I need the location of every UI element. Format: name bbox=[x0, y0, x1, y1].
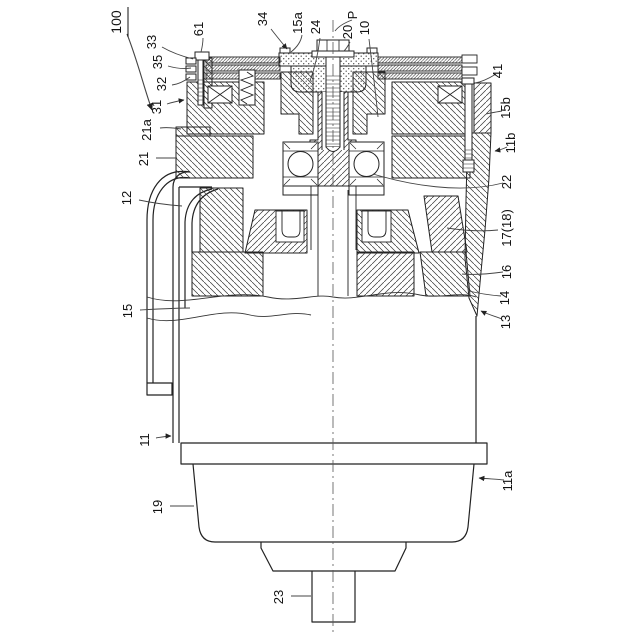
step-21a bbox=[176, 127, 210, 136]
ref-label-P: P bbox=[345, 11, 360, 20]
tier-block-left-21 bbox=[176, 136, 253, 178]
magnet-17-18 bbox=[424, 196, 467, 252]
tier-block-right bbox=[392, 136, 470, 178]
strip-endcap bbox=[462, 67, 477, 75]
lip-15a-left bbox=[280, 48, 290, 53]
bearing-left-seat bbox=[283, 186, 318, 195]
leader-15a bbox=[291, 35, 302, 52]
lamination-strip bbox=[378, 65, 462, 71]
ref-label-12: 12 bbox=[119, 191, 134, 205]
ref-label-14: 14 bbox=[497, 291, 512, 305]
ref-label-100: 100 bbox=[108, 10, 124, 34]
ref-label-15a: 15a bbox=[290, 11, 305, 33]
leader-34 bbox=[271, 29, 287, 49]
ref-label-15: 15 bbox=[120, 304, 135, 318]
leader-11 bbox=[156, 436, 171, 438]
screw-61-shank bbox=[198, 60, 203, 105]
ref-label-10: 10 bbox=[357, 21, 372, 35]
bolt-41-foot bbox=[463, 160, 474, 172]
strip-endcap bbox=[462, 55, 477, 63]
ref-label-11a: 11a bbox=[500, 470, 515, 491]
patent-motor-cross-section: 100 61 33 35 32 34 15a 24 P 20 10 41 15b… bbox=[0, 0, 640, 640]
leader-31 bbox=[167, 100, 184, 104]
figure-canvas: 100 61 33 35 32 34 15a 24 P 20 10 41 15b… bbox=[0, 0, 640, 640]
ref-label-35: 35 bbox=[150, 55, 165, 69]
ref-label-15b: 15b bbox=[498, 97, 513, 119]
pole-block-left bbox=[200, 188, 243, 252]
lamination-strip bbox=[206, 57, 280, 63]
leader-33 bbox=[162, 47, 193, 59]
output-shaft-23 bbox=[312, 571, 355, 622]
cover-15-foot bbox=[147, 383, 172, 395]
tab-35 bbox=[186, 66, 196, 72]
ref-label-22: 22 bbox=[499, 175, 514, 189]
break-line-left bbox=[147, 313, 311, 321]
lower-block-left bbox=[192, 252, 263, 296]
ref-label-23: 23 bbox=[271, 590, 286, 604]
bearing-right-seat bbox=[349, 186, 384, 195]
leader-61 bbox=[201, 38, 203, 52]
ref-label-16: 16 bbox=[499, 265, 514, 279]
ref-label-33: 33 bbox=[144, 35, 159, 49]
break-lines bbox=[147, 293, 476, 321]
ref-label-20: 20 bbox=[340, 25, 355, 39]
ref-label-21a: 21a bbox=[139, 118, 154, 140]
lip-15a-right bbox=[367, 48, 377, 53]
ref-label-34: 34 bbox=[255, 12, 270, 26]
ref-label-31: 31 bbox=[149, 100, 164, 114]
lamination-strip bbox=[378, 57, 462, 63]
commutator-lines bbox=[311, 186, 356, 296]
bell-19 bbox=[193, 464, 474, 542]
bearing-left-ball bbox=[288, 152, 313, 177]
ref-label-41: 41 bbox=[490, 64, 505, 78]
ref-label-61: 61 bbox=[191, 22, 206, 36]
ref-label-24: 24 bbox=[308, 20, 323, 34]
bolt-41-head bbox=[462, 78, 474, 84]
ref-label-32: 32 bbox=[154, 77, 169, 91]
lamination-strip bbox=[378, 73, 462, 79]
ref-label-13: 13 bbox=[498, 315, 513, 329]
mounting-flange bbox=[181, 443, 487, 464]
ref-label-19: 19 bbox=[150, 500, 165, 514]
lower-block-right bbox=[357, 252, 414, 296]
ref-label-11b: 11b bbox=[503, 133, 518, 154]
rim-block-right bbox=[474, 83, 491, 133]
ref-label-17-18: 17(18) bbox=[499, 209, 514, 247]
bearing-right-ball bbox=[354, 152, 379, 177]
bolt-41-shank bbox=[465, 84, 472, 160]
screw-61-head bbox=[195, 52, 209, 60]
leader-12 bbox=[139, 200, 182, 206]
ref-label-11: 11 bbox=[137, 433, 152, 447]
bottom-boss bbox=[261, 542, 406, 571]
ref-label-21: 21 bbox=[136, 152, 151, 166]
